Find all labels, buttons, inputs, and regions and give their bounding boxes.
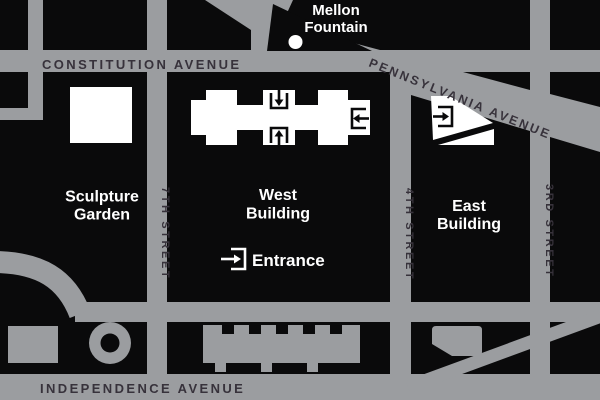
constitution-avenue-label: CONSTITUTION AVENUE: [42, 57, 241, 72]
gallery-area-map: CONSTITUTION AVENUE INDEPENDENCE AVENUE …: [0, 0, 600, 400]
entrance-label: Entrance: [252, 251, 325, 270]
east-building-label-line1: East: [452, 198, 486, 215]
block-east-of-3rd: [550, 137, 600, 302]
third-street-label: 3RD STREET: [543, 184, 555, 278]
south-building-square: [8, 326, 58, 363]
building-notch: [276, 325, 288, 334]
sculpture-garden-pavilion-footprint: [70, 87, 132, 143]
mellon-fountain-dot: [289, 35, 303, 49]
block-northeast: [550, 0, 600, 50]
sculpture-garden-label-line2: Garden: [74, 207, 130, 224]
building-notch: [303, 325, 315, 334]
mellon-fountain-label-line1: Mellon: [312, 2, 360, 19]
mellon-fountain-label-line2: Fountain: [304, 19, 367, 36]
map-screenshot: CONSTITUTION AVENUE INDEPENDENCE AVENUE …: [0, 0, 600, 400]
east-building-label-line2: Building: [437, 216, 501, 233]
fourth-street-label: 4TH STREET: [403, 188, 415, 281]
building-notch: [330, 325, 342, 334]
independence-avenue-label: INDEPENDENCE AVENUE: [40, 381, 245, 396]
building-tab: [307, 363, 318, 372]
building-tab: [215, 363, 226, 372]
west-building-label-line1: West: [259, 187, 298, 204]
seventh-street-label: 7TH STREET: [159, 187, 171, 280]
west-building-footprint: [191, 90, 370, 145]
building-tab: [261, 363, 272, 372]
sculpture-garden-label-line1: Sculpture: [65, 189, 139, 206]
block-northwest-a: [0, 0, 28, 50]
west-building-label-line2: Building: [246, 206, 310, 223]
sculpture-garden-block-corner: [0, 72, 28, 108]
building-notch: [222, 325, 234, 334]
building-notch: [249, 325, 261, 334]
south-building-ring-hole: [101, 334, 120, 353]
block-northwest-b: [43, 0, 147, 50]
